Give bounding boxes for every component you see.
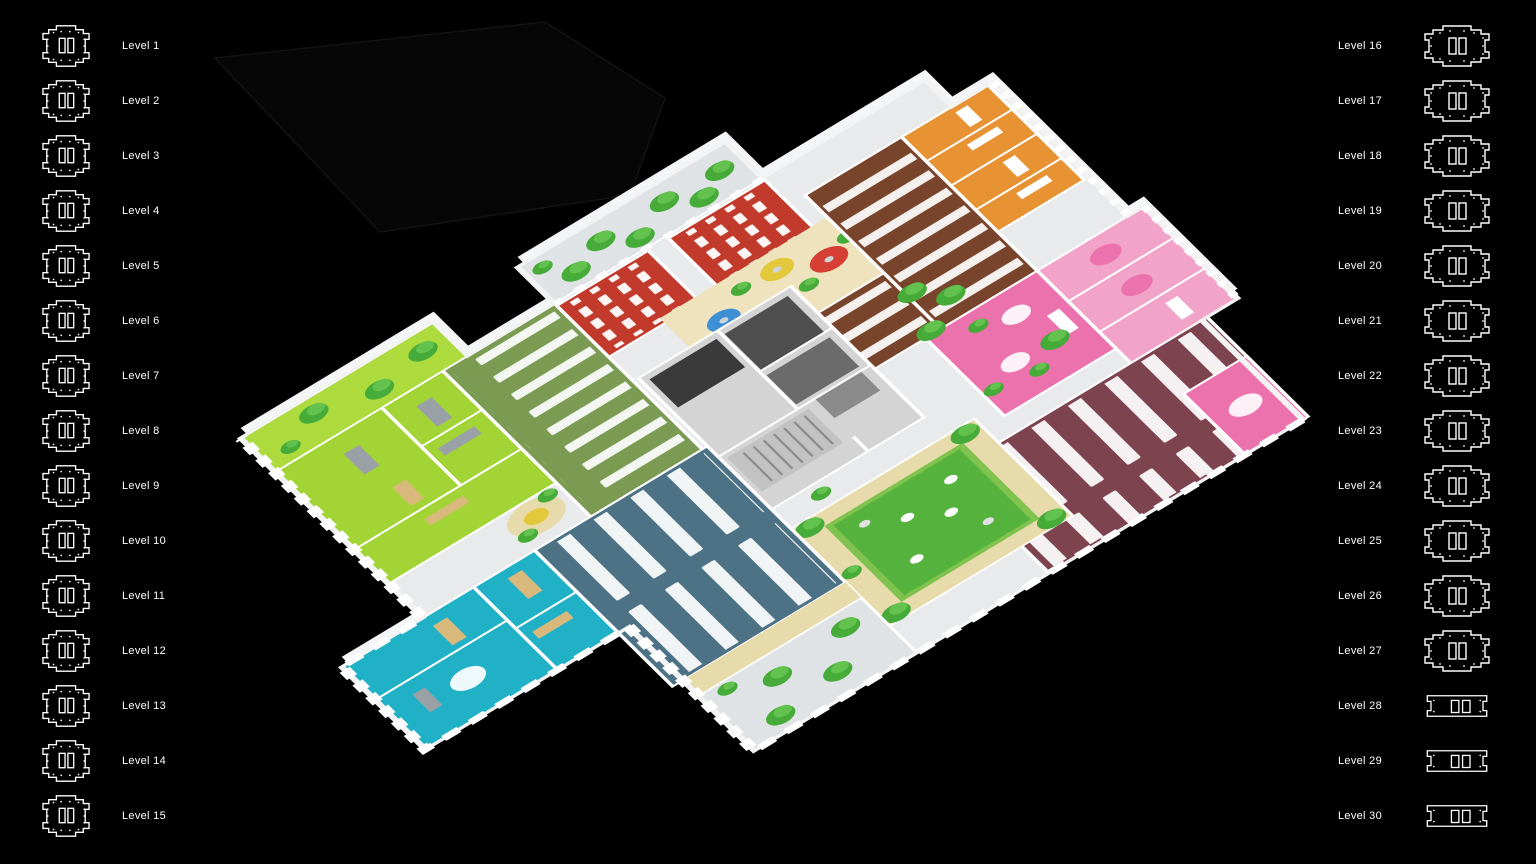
level-label: Level 24: [1338, 480, 1398, 492]
floor-outline-icon-glyph: [1417, 353, 1497, 399]
floor-outline-icon-glyph: [1417, 573, 1497, 619]
floor-outline-icon-glyph: [35, 242, 97, 290]
level-label: Level 2: [122, 95, 160, 107]
floor-outline-icon-glyph: [35, 132, 97, 180]
floor-outline-icon: [1416, 748, 1498, 774]
floor-outline-icon-glyph: [1417, 298, 1497, 344]
level-item[interactable]: Level 20: [1338, 238, 1498, 293]
level-item[interactable]: Level 24: [1338, 458, 1498, 513]
level-label: Level 19: [1338, 205, 1398, 217]
floor-outline-icon-glyph: [35, 407, 97, 455]
level-label: Level 18: [1338, 150, 1398, 162]
level-item[interactable]: Level 21: [1338, 293, 1498, 348]
level-label: Level 22: [1338, 370, 1398, 382]
level-item[interactable]: Level 10: [34, 513, 166, 568]
level-item[interactable]: Level 25: [1338, 513, 1498, 568]
level-item[interactable]: Level 15: [34, 788, 166, 843]
level-label: Level 11: [122, 590, 165, 602]
floor-outline-icon-glyph: [35, 572, 97, 620]
level-item[interactable]: Level 5: [34, 238, 166, 293]
level-item[interactable]: Level 9: [34, 458, 166, 513]
level-item[interactable]: Level 16: [1338, 18, 1498, 73]
floor-outline-icon-glyph: [1417, 408, 1497, 454]
floor-outline-icon: [1416, 693, 1498, 719]
floor-outline-icon-glyph: [1417, 133, 1497, 179]
floor-outline-icon-glyph: [35, 682, 97, 730]
level-item[interactable]: Level 28: [1338, 678, 1498, 733]
floor-outline-icon: [1416, 518, 1498, 564]
floor-outline-icon-glyph: [1417, 78, 1497, 124]
level-item[interactable]: Level 19: [1338, 183, 1498, 238]
floor-outline-icon: [1416, 628, 1498, 674]
floor-outline-icon: [1416, 803, 1498, 829]
floor-outline-icon-glyph: [1417, 463, 1497, 509]
level-item[interactable]: Level 4: [34, 183, 166, 238]
floor-outline-icon: [1416, 78, 1498, 124]
level-label: Level 5: [122, 260, 160, 272]
level-item[interactable]: Level 26: [1338, 568, 1498, 623]
floor-outline-icon-glyph: [1417, 188, 1497, 234]
floor-outline-icon: [1416, 23, 1498, 69]
level-item[interactable]: Level 29: [1338, 733, 1498, 788]
level-item[interactable]: Level 22: [1338, 348, 1498, 403]
floor-outline-icon: [34, 792, 98, 840]
floor-outline-icon: [1416, 133, 1498, 179]
floor-outline-icon: [1416, 463, 1498, 509]
level-item[interactable]: Level 8: [34, 403, 166, 458]
level-label: Level 14: [122, 755, 166, 767]
level-label: Level 8: [122, 425, 160, 437]
level-item[interactable]: Level 3: [34, 128, 166, 183]
floor-outline-icon: [34, 517, 98, 565]
level-selector-left: Level 1Level 2Level 3Level 4Level 5Level…: [34, 18, 166, 843]
floor-outline-icon-glyph: [35, 792, 97, 840]
level-label: Level 26: [1338, 590, 1398, 602]
level-item[interactable]: Level 2: [34, 73, 166, 128]
floor-outline-icon: [1416, 353, 1498, 399]
level-label: Level 21: [1338, 315, 1398, 327]
level-label: Level 4: [122, 205, 160, 217]
floorplan-3d-view[interactable]: [0, 0, 1536, 864]
floor-outline-icon: [34, 572, 98, 620]
level-label: Level 1: [122, 40, 160, 52]
floor-outline-icon-glyph: [35, 187, 97, 235]
level-label: Level 6: [122, 315, 160, 327]
floor-outline-icon-glyph: [1419, 693, 1495, 719]
floor-outline-icon-glyph: [35, 352, 97, 400]
level-label: Level 29: [1338, 755, 1398, 767]
floor-outline-icon-glyph: [35, 517, 97, 565]
level-label: Level 25: [1338, 535, 1398, 547]
floor-outline-icon: [34, 187, 98, 235]
floor-outline-icon: [34, 737, 98, 785]
level-item[interactable]: Level 18: [1338, 128, 1498, 183]
level-item[interactable]: Level 7: [34, 348, 166, 403]
level-label: Level 9: [122, 480, 160, 492]
level-label: Level 12: [122, 645, 166, 657]
floor-outline-icon: [34, 77, 98, 125]
level-item[interactable]: Level 13: [34, 678, 166, 733]
level-item[interactable]: Level 17: [1338, 73, 1498, 128]
level-item[interactable]: Level 6: [34, 293, 166, 348]
background-ghost-outline: [215, 22, 665, 232]
floor-outline-icon-glyph: [1419, 748, 1495, 774]
level-label: Level 15: [122, 810, 166, 822]
floor-outline-icon-glyph: [35, 627, 97, 675]
level-item[interactable]: Level 14: [34, 733, 166, 788]
level-label: Level 17: [1338, 95, 1398, 107]
floor-outline-icon-glyph: [35, 77, 97, 125]
app-stage: Level 1Level 2Level 3Level 4Level 5Level…: [0, 0, 1536, 864]
floor-outline-icon-glyph: [1419, 803, 1495, 829]
level-item[interactable]: Level 30: [1338, 788, 1498, 843]
floor-outline-icon: [34, 297, 98, 345]
floor-outline-icon: [34, 407, 98, 455]
level-label: Level 13: [122, 700, 166, 712]
floor-outline-icon-glyph: [35, 297, 97, 345]
floor-outline-icon: [34, 352, 98, 400]
level-label: Level 27: [1338, 645, 1398, 657]
level-label: Level 10: [122, 535, 166, 547]
floor-outline-icon: [34, 242, 98, 290]
floor-outline-icon: [34, 132, 98, 180]
level-item[interactable]: Level 11: [34, 568, 166, 623]
floor-outline-icon: [1416, 408, 1498, 454]
floor-outline-icon-glyph: [35, 22, 97, 70]
level-item[interactable]: Level 27: [1338, 623, 1498, 678]
floor-outline-icon-glyph: [1417, 243, 1497, 289]
floor-outline-icon-glyph: [1417, 628, 1497, 674]
level-label: Level 20: [1338, 260, 1398, 272]
level-item[interactable]: Level 1: [34, 18, 166, 73]
floor-outline-icon: [34, 682, 98, 730]
floor-outline-icon: [1416, 298, 1498, 344]
level-label: Level 16: [1338, 40, 1398, 52]
level-selector-right: Level 16Level 17Level 18Level 19Level 20…: [1338, 18, 1498, 843]
level-label: Level 30: [1338, 810, 1398, 822]
level-item[interactable]: Level 12: [34, 623, 166, 678]
floor-outline-icon-glyph: [35, 462, 97, 510]
level-label: Level 3: [122, 150, 160, 162]
floor-outline-icon: [1416, 188, 1498, 234]
floor-outline-icon: [1416, 573, 1498, 619]
level-label: Level 23: [1338, 425, 1398, 437]
floor-outline-icon-glyph: [35, 737, 97, 785]
floor-outline-icon-glyph: [1417, 23, 1497, 69]
floor-outline-icon: [1416, 243, 1498, 289]
floor-outline-icon-glyph: [1417, 518, 1497, 564]
floor-outline-icon: [34, 627, 98, 675]
floor-outline-icon: [34, 462, 98, 510]
level-label: Level 7: [122, 370, 160, 382]
level-label: Level 28: [1338, 700, 1398, 712]
floor-outline-icon: [34, 22, 98, 70]
level-item[interactable]: Level 23: [1338, 403, 1498, 458]
